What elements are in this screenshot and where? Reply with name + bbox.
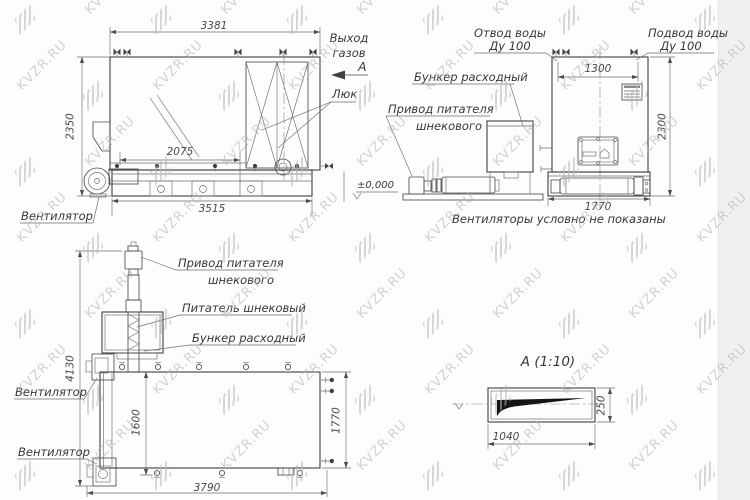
dim-side-frame: 3515	[192, 203, 232, 215]
feeder-drive-motor	[409, 177, 441, 194]
dim-front-width: 1770	[578, 201, 618, 213]
damper-wedge	[497, 398, 586, 417]
label-level-mark: ±0,000	[357, 179, 394, 192]
hopper-front	[487, 121, 533, 194]
label-side-fan: Вентилятор	[21, 210, 93, 223]
hatch-leader	[262, 102, 356, 148]
front-frame	[548, 172, 650, 196]
section-title: А (1:10)	[518, 356, 578, 369]
label-front-hopper: Бункер расходный	[414, 71, 528, 84]
label-plan-fan-upper: Вентилятор	[15, 386, 87, 399]
baseplate	[403, 194, 543, 200]
label-front-feeder-drive-line1: Привод питателя	[388, 103, 494, 116]
dim-plan-inner-width: 1600	[131, 405, 144, 441]
plan-hopper-leader	[144, 345, 296, 351]
label-hatch: Люк	[332, 88, 357, 101]
label-plan-hopper: Бункер расходный	[192, 332, 306, 345]
feeder-column	[125, 242, 142, 312]
boiler-side-outline	[110, 57, 320, 170]
dim-section-width: 1040	[488, 431, 524, 443]
label-plan-feeder-drive-line1: Привод питателя	[178, 257, 284, 270]
label-gas-outlet-line1: Выход	[328, 32, 370, 45]
label-front-feeder-drive-line2: шнекового	[416, 120, 482, 133]
plan-fan-lower	[87, 458, 116, 486]
dim-plan-width: 1770	[331, 403, 344, 439]
drawing-linework	[0, 0, 750, 500]
side-fan	[84, 168, 138, 197]
label-section-letter: А	[358, 60, 367, 73]
side-fitting	[320, 163, 333, 169]
water-outlet-leader	[474, 53, 557, 61]
dim-front-height: 2300	[657, 109, 670, 145]
label-fans-note: Вентиляторы условно не показаны	[452, 213, 648, 226]
fan-lower-leader	[17, 459, 97, 464]
nozzle-icon	[114, 49, 121, 58]
dim-section-height: 250	[596, 388, 609, 424]
section-view-linework	[452, 388, 615, 449]
furnace-door	[578, 137, 618, 165]
label-screw-feeder: Питатель шнековый	[182, 302, 306, 315]
dim-plan-length: 3790	[187, 482, 227, 494]
screw-auger	[128, 312, 139, 372]
label-plan-feeder-drive-line2: шнекового	[208, 274, 274, 287]
side-frame	[112, 164, 312, 196]
dim-side-inner: 2075	[160, 146, 200, 158]
label-plan-fan-lower: Вентилятор	[18, 446, 90, 459]
nameplate	[622, 84, 642, 100]
boiler-drawing-page: Выход газов А Люк ±0,000 Вентилятор 3381…	[0, 0, 750, 500]
dim-side-top: 3381	[194, 20, 234, 32]
label-water-supply-line2: Ду 100	[648, 40, 714, 53]
dim-side-height: 2350	[65, 109, 78, 145]
label-water-outlet-line2: Ду 100	[474, 40, 546, 53]
dim-plan-total-length: 4130	[65, 351, 78, 387]
side-chute	[93, 122, 110, 151]
screw-feeder-tube	[442, 177, 499, 193]
dim-front-top: 1300	[578, 63, 618, 75]
